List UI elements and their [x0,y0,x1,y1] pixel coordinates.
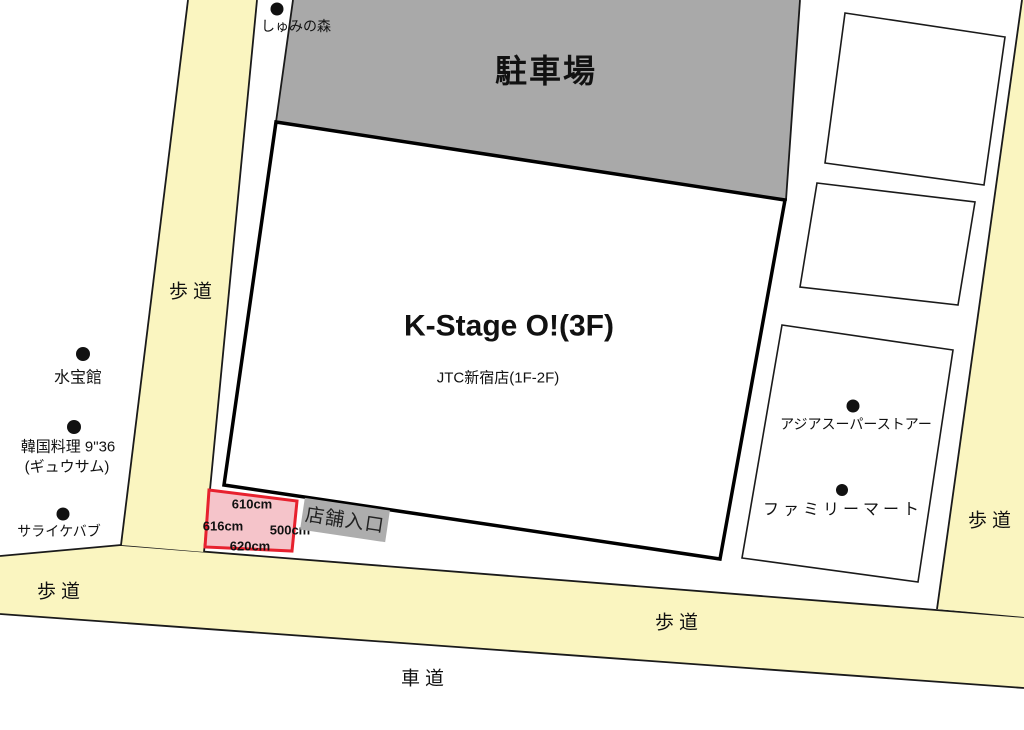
poi-label-asia-super-store: アジアスーパーストアー [780,416,932,432]
sidewalk-bottom-mid-label: 歩道 [655,612,703,634]
poi-dot-suihokan [76,347,90,361]
poi-dot-korean-restaurant [67,420,81,434]
measurement-top: 610cm [232,497,272,512]
main-building: K-Stage O!(3F) JTC新宿店(1F-2F) [224,122,785,559]
measured-area: 610cm 616cm 500cm 620cm [203,490,310,554]
poi-dot-sarai-kebab [57,508,70,521]
poi-label-korean-restaurant: 韓国料理 9"36 [21,439,116,456]
poi-label-suihokan: 水宝館 [54,369,102,387]
sidewalk-left-label: 歩道 [169,281,217,303]
poi-label-sarai-kebab: サライケバブ [17,523,100,539]
building-name-label: K-Stage O!(3F) [404,310,614,343]
measurement-left: 616cm [203,519,243,534]
poi-dot-shumi-no-mori [271,3,284,16]
neighbor-box-1 [825,13,1005,185]
building-floors-label: JTC新宿店(1F-2F) [437,370,560,387]
poi-label-shumi-no-mori: しゅみの森 [261,18,331,34]
site-map: 駐車場 K-Stage O!(3F) JTC新宿店(1F-2F) アジアスーパー… [0,0,1024,730]
measurement-bottom: 620cm [230,539,270,554]
poi-label-familymart: ファミリーマート [763,502,923,519]
sidewalk-bottom-left-label: 歩道 [37,581,85,603]
poi-label-korean-restaurant-sub: (ギュウサム) [25,459,110,476]
neighbor-box-2 [800,183,975,305]
roadway-label: 車道 [401,668,449,690]
sidewalk-right-label: 歩道 [968,510,1016,532]
parking-label: 駐車場 [495,53,597,89]
poi-dot-familymart [836,484,848,496]
poi-dot-asia-super-store [847,400,860,413]
